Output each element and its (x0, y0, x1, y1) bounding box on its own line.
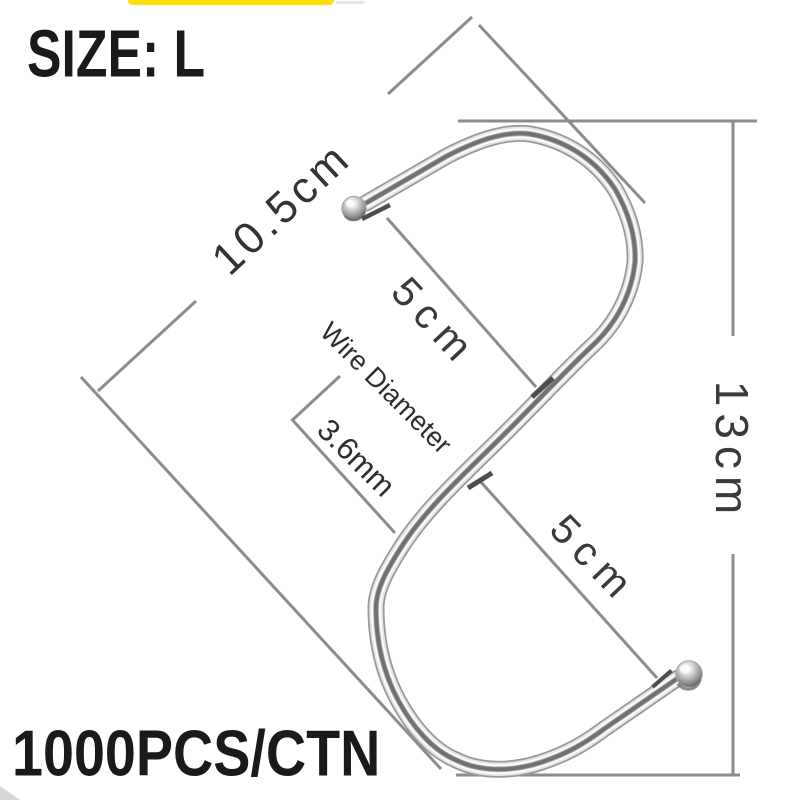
svg-text:13cm: 13cm (706, 381, 758, 521)
svg-text:1000PCS/CTN: 1000PCS/CTN (12, 716, 380, 789)
svg-text:SIZE: L: SIZE: L (27, 16, 205, 91)
